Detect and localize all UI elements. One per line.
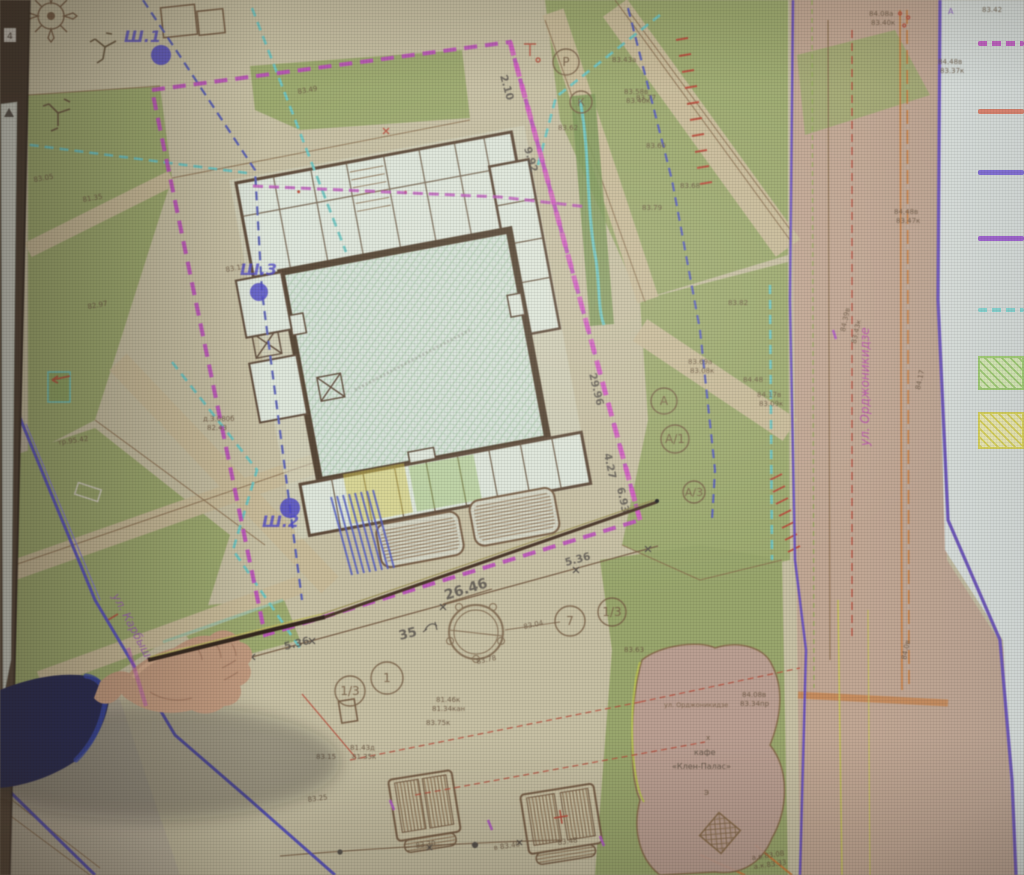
spot-elevation-text: 83.63 xyxy=(624,646,644,654)
borehole-marker xyxy=(250,283,268,301)
spot-elevation-text: 83.75к xyxy=(426,719,450,727)
legend-item-green-hatch-area xyxy=(978,356,1024,390)
street-label: ул. Орджоникидзе xyxy=(858,327,872,447)
spot-elevation-text: 84.48 xyxy=(743,376,763,384)
spot-elevation-text: 83.77 xyxy=(636,94,656,102)
spot-elevation-text: 83.79 xyxy=(642,204,662,212)
spot-elevation-text: 84.08в xyxy=(742,691,766,699)
axis-bubble-label: А/1 xyxy=(665,432,685,446)
borehole-label: Ш.2 xyxy=(262,512,299,531)
axis-bubble-label: А/3 xyxy=(685,486,703,499)
cafe-label: кафе xyxy=(694,748,716,757)
spot-elevation-text: 81.34кан xyxy=(432,705,465,713)
spot-elevation-text: 83.60 xyxy=(646,142,666,150)
legend-item-red-utility-line xyxy=(978,109,1024,114)
cafe-building xyxy=(632,644,785,875)
site-plan-svg: 83.4284.48в83.37к84.08а83.40к84.39в83.43… xyxy=(0,0,1024,875)
kiosk xyxy=(520,783,604,866)
spot-elevation-text: 81.46к xyxy=(436,696,460,704)
cafe-label: Э xyxy=(704,789,709,797)
axis-bubble-label: 1/3 xyxy=(602,605,621,619)
spot-elevation-text: д.3.080б xyxy=(203,415,234,423)
spot-elevation-text: 83.34пр xyxy=(740,700,770,708)
spot-elevation-text: 84.48в xyxy=(894,208,918,216)
axis-bubble-label: Р xyxy=(562,55,569,69)
spot-elevation-text: 81.43д xyxy=(350,744,375,752)
spot-elevation-text: 83.43а xyxy=(612,56,636,64)
axis-bubble-label: А xyxy=(660,394,669,408)
spot-elevation-text: 83.62 xyxy=(558,124,578,132)
legend-item-site-boundary-line xyxy=(978,41,1024,46)
legend-strip xyxy=(952,0,1024,875)
axis-bubble-label: К xyxy=(577,96,585,109)
spot-elevation-text: 83.69а xyxy=(688,358,712,366)
axis-bubble-label: 7 xyxy=(566,614,574,628)
cafe-label: ул. Орджоникидзе xyxy=(664,701,728,709)
axis-bubble-label: 1 xyxy=(383,671,391,685)
legend-item-cyan-dashed-line xyxy=(978,308,1024,312)
spot-elevation-text: 83.40к xyxy=(871,19,895,27)
borehole-label: Ш.1 xyxy=(124,27,161,46)
spot-elevation-text: 84.17в xyxy=(757,391,781,399)
cafe-label: х xyxy=(706,734,710,742)
spot-elevation-text: 84.08а xyxy=(869,10,893,18)
legend-item-blue-violet-line xyxy=(978,170,1024,175)
axis-bubble-label: 1/3 xyxy=(340,684,359,698)
spot-elevation-text: 83.82 xyxy=(728,299,748,307)
legend-item-yellow-hatch-area xyxy=(978,412,1024,449)
spot-elevation-text: 83.68 xyxy=(680,182,700,190)
misc-label: 4 xyxy=(7,32,13,42)
borehole-marker xyxy=(151,45,171,65)
legend-item-purple-line xyxy=(978,236,1024,241)
spot-elevation-text: 83.47к xyxy=(896,217,920,225)
spot-elevation-text: 83.08к xyxy=(690,367,714,375)
spot-elevation-text: 82.43 xyxy=(207,424,227,432)
borehole-label: Ш.3 xyxy=(240,260,277,279)
courtyard xyxy=(281,230,548,481)
spot-elevation-text: 83.09к xyxy=(759,400,783,408)
projected-site-plan-photo: 83.4284.48в83.37к84.08а83.40к84.39в83.43… xyxy=(0,0,1024,875)
cafe-label: «Клен-Палас» xyxy=(672,762,731,771)
spot-elevation-text: 81.35к xyxy=(352,753,376,761)
